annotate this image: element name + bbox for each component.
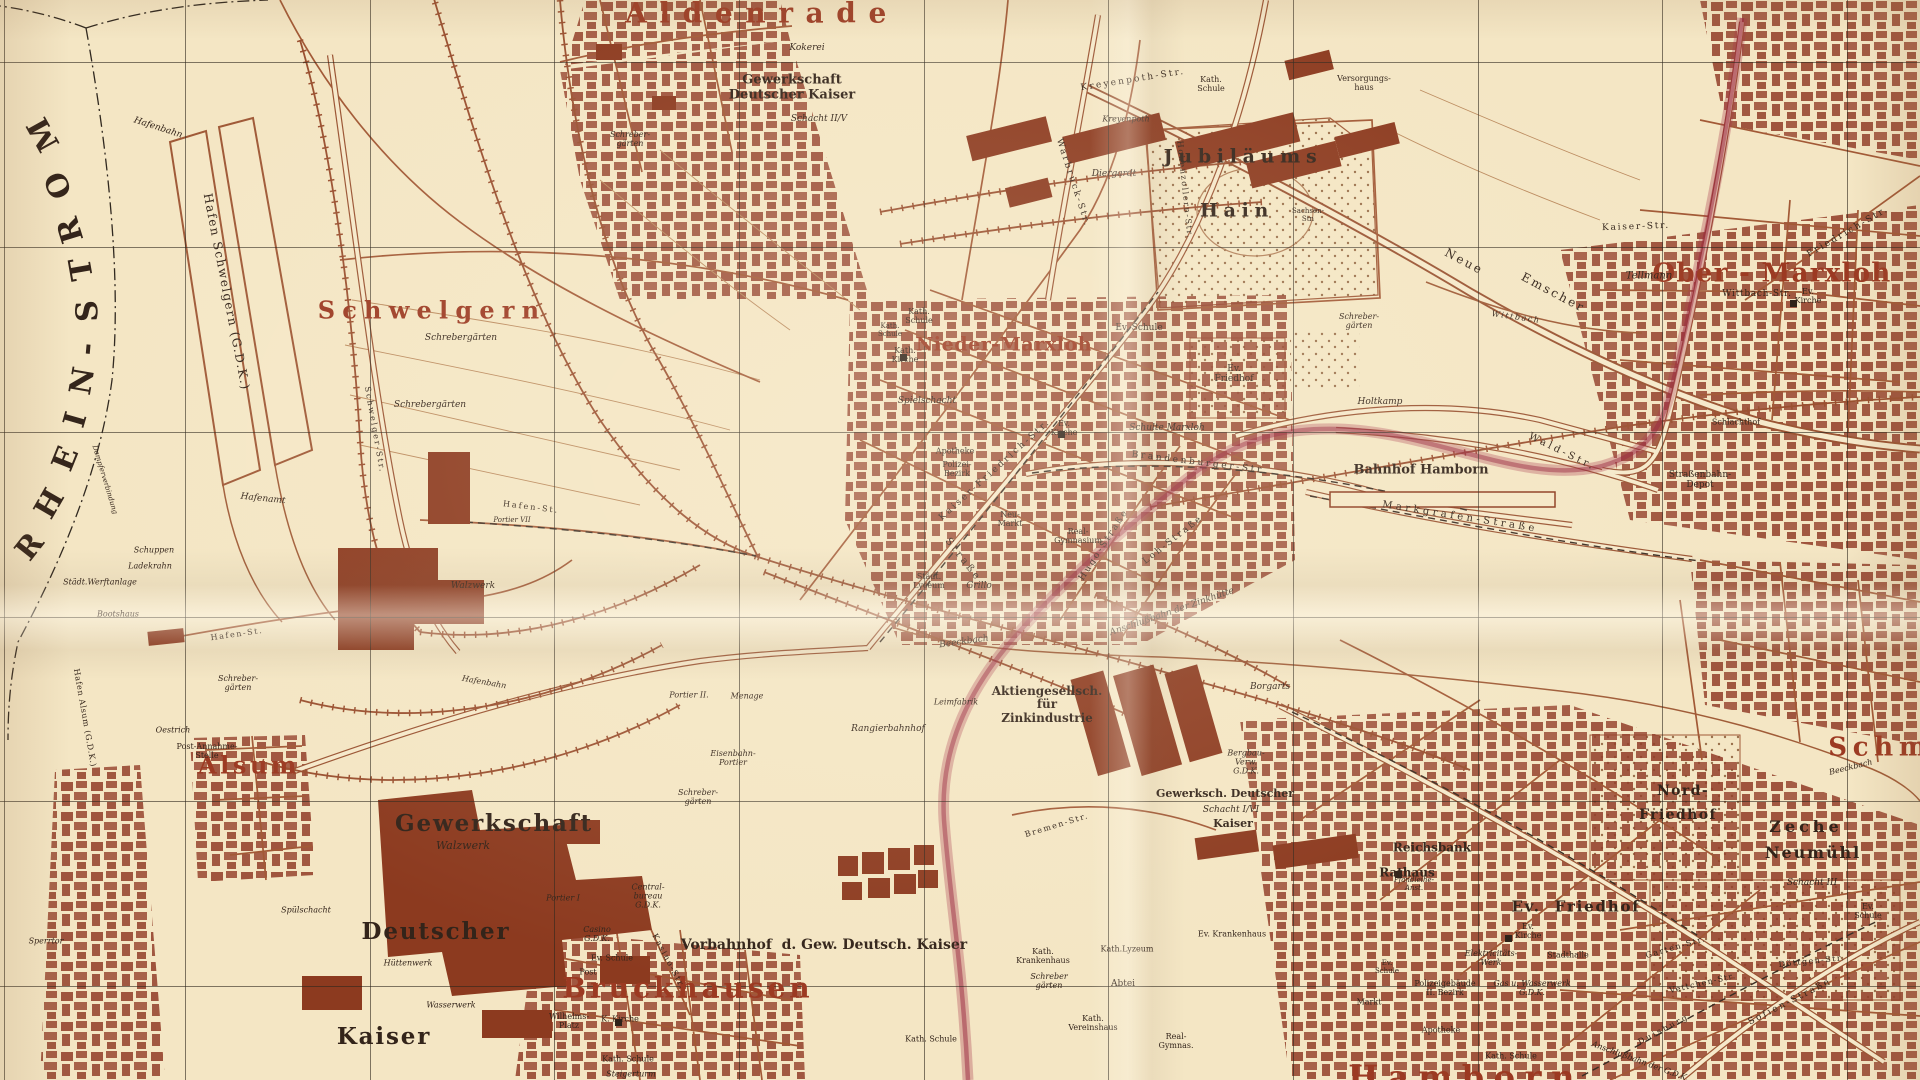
poi-reichsbank: Reichsbank bbox=[1393, 841, 1471, 854]
street-garten: Garten-Str. bbox=[1645, 935, 1708, 961]
poi-schacht-iii: Schacht III bbox=[1787, 878, 1837, 888]
poi-grillo: Grillo bbox=[966, 581, 992, 591]
water-hafen-schwelgern: Hafen Schwelgern (G.D.K.) bbox=[200, 192, 252, 392]
poi-holtkamp: Holtkamp bbox=[1358, 397, 1403, 407]
poi-staedt-lyceum: Städt. Lyceum bbox=[913, 573, 945, 591]
place-gewerkschaft: Gewerkschaft bbox=[395, 811, 593, 837]
street-vettchen: Vettchen-Str. bbox=[1669, 972, 1737, 996]
poi-versorgungshaus: Versorgungs- haus bbox=[1337, 75, 1391, 93]
poi-steigerturm: Steigerturm bbox=[606, 1071, 655, 1080]
poi-schuppen: Schuppen bbox=[134, 547, 174, 556]
street-doettgen: Döttgen-Str. bbox=[1778, 954, 1845, 970]
rhein-strom-letter: O bbox=[38, 166, 79, 203]
poi-polizeigebaeude: Polizeigebäude II. Bezirk bbox=[1414, 980, 1475, 998]
poi-k-kirche: K. Kirche bbox=[601, 1016, 639, 1025]
place-schwelgern: Schwelgern bbox=[318, 298, 547, 325]
place-jubilaeums-hain: Jubiläums bbox=[1164, 146, 1323, 167]
poi-wasserwerk: Wasserwerk bbox=[426, 1002, 475, 1011]
poi-kokerei: Kokerei bbox=[789, 43, 824, 53]
poi-schrebergaerten: Schrebergärten bbox=[425, 333, 497, 343]
poi-wilhelmsplatz: Wilhelms- Platz bbox=[549, 1013, 589, 1031]
map-labels: AldenradeSchwelgernNieder-MarxlohOber - … bbox=[0, 0, 1920, 1080]
rhein-strom-letter: S bbox=[71, 300, 105, 323]
poi-spielschacht: Spielschacht bbox=[898, 396, 956, 406]
poi-kreyenpoth: Kreyenpoth bbox=[1102, 116, 1149, 125]
poi-schrebergaerten: Schreber- gärten bbox=[610, 131, 650, 149]
poi-nordfriedhof: Friedhof bbox=[1639, 808, 1717, 824]
poi-neu-markt: Neu- Markt bbox=[998, 511, 1023, 529]
poi-menage: Menage bbox=[731, 693, 764, 702]
poi-schulte-marxloh: Schulte Marxloh bbox=[1129, 423, 1205, 433]
place-hamborn: Hamborn bbox=[1348, 1060, 1584, 1080]
poi-kath-schule: Kath. Schule bbox=[878, 323, 902, 339]
place-nieder-marxloh: Nieder-Marxloh bbox=[916, 334, 1092, 355]
poi-rangierbahnhof: Rangierbahnhof bbox=[851, 724, 925, 734]
poi-pfandleihe: Pfandleihe- Anst. bbox=[1394, 877, 1434, 893]
water-wittbach: Wittbach bbox=[1491, 310, 1541, 326]
rhein-strom-letter: H bbox=[28, 483, 71, 524]
poi-bootshaus: Bootshaus bbox=[97, 611, 139, 620]
water-neue-emscher: Neue bbox=[1442, 246, 1485, 278]
street-strasse: Straße bbox=[943, 536, 984, 584]
poi-portier: Portier I bbox=[546, 895, 580, 904]
poi-bahnhof-hamborn: Bahnhof Hamborn bbox=[1353, 464, 1488, 479]
poi-real-gymnasium: Real- Gymnasium bbox=[1054, 528, 1102, 546]
street-bremen: Bremen-Str. bbox=[1024, 812, 1090, 840]
poi-ev-friedhof: Ev. Friedhof bbox=[1511, 899, 1640, 916]
poi-real-gymnasium: Real- Gymnas. bbox=[1158, 1033, 1193, 1051]
poi-markt: Markt bbox=[1357, 999, 1382, 1008]
street-loh: Loh-Straße bbox=[1141, 513, 1205, 566]
rhein-strom-letter: T bbox=[64, 255, 101, 283]
place-jubilaeums-hain: Hain bbox=[1200, 200, 1274, 221]
poi-werftanlage: Städt.Werftanlage bbox=[63, 579, 137, 588]
poi-ev-krankenhaus: Ev. Krankenhaus bbox=[1198, 931, 1266, 940]
rhein-strom-letter: N bbox=[64, 365, 102, 398]
poi-elektricitaetswerk: Elektricitäts- Werk bbox=[1465, 950, 1518, 968]
poi-ev-schule: Ev. Schule bbox=[1375, 960, 1399, 976]
rail-hafenbahn: Hafenbahn bbox=[461, 675, 507, 692]
poi-bergbau-verwaltung: Bergbau- Verw. G.D.K. bbox=[1227, 750, 1264, 777]
map-canvas: AldenradeSchwelgernNieder-MarxlohOber - … bbox=[0, 0, 1920, 1080]
poi-apotheke: Apotheke bbox=[1422, 1027, 1460, 1036]
poi-stadthalle: Stadthalle bbox=[1547, 952, 1589, 961]
poi-ev-friedhof-marxloh: Ev. Friedhof bbox=[1214, 364, 1253, 384]
poi-ev-kirche: Ev. Kirche bbox=[1051, 420, 1078, 438]
poi-schacht-i-vi: Schacht I/VI bbox=[1203, 805, 1259, 815]
poi-sperrtor: Sperrtor bbox=[29, 938, 64, 947]
poi-spuelschacht: Spülschacht bbox=[281, 907, 331, 916]
rhein-strom-letter: I bbox=[58, 409, 94, 432]
poi-eisenbahn-portier: Eisenbahn- Portier bbox=[710, 750, 755, 768]
poi-ev-kirche: Ev. Kirche bbox=[1515, 923, 1542, 941]
place-kaiser: Kaiser bbox=[337, 1024, 431, 1050]
poi-post-annahme: Post-Annahme- Stelle bbox=[177, 743, 238, 761]
place-schmidthorst-cut: Schmi bbox=[1828, 733, 1920, 762]
water-hafen-alsum: Hafen Alsum (G.D.K.) bbox=[71, 668, 97, 768]
poi-schlachthof: Schlachthof bbox=[1712, 419, 1760, 428]
poi-apotheke: Apotheke bbox=[936, 448, 974, 457]
place-zeche-neumuehl: Zeche bbox=[1769, 818, 1842, 836]
poi-kath-krankenhaus: Kath. Krankenhaus bbox=[1016, 948, 1070, 966]
street-hafen: Hafen-St. bbox=[502, 500, 559, 516]
poi-gdk-sued: Kaiser bbox=[1213, 818, 1253, 830]
poi-tellmann: Tellmann bbox=[1626, 270, 1673, 281]
poi-kath-schule: Kath. Schule bbox=[1485, 1053, 1537, 1062]
rhein-strom-letter: E bbox=[46, 442, 86, 476]
poi-vorbahnhof: Vorbahnhof d. Gew. Deutsch. Kaiser bbox=[681, 938, 967, 954]
rail-hafenbahn: Hafenbahn bbox=[132, 115, 183, 140]
poi-sachsen-stn: Sachsen- Stn bbox=[1292, 208, 1324, 224]
poi-schacht-ii-v: Schacht II/V bbox=[791, 114, 847, 124]
water-beeckbach: Beeckbach bbox=[939, 634, 990, 651]
poi-kath-kirche: Kath. Kirche bbox=[892, 347, 919, 365]
poi-ladekrahn: Ladekrahn bbox=[128, 563, 172, 572]
street-wittbach-str: Wittbach-Str. bbox=[1722, 289, 1792, 299]
poi-kath-vereinshaus: Kath. Vereinshaus bbox=[1068, 1015, 1117, 1033]
poi-walzwerk: Walzwerk bbox=[436, 840, 490, 852]
poi-polizei-bezirk: Polizei- Bezirk bbox=[942, 461, 971, 479]
rhein-strom-letter: - bbox=[70, 341, 105, 356]
street-markgrafen: Markgrafen-Straße bbox=[1381, 499, 1538, 535]
poi-kath-schule: Kath. Schule bbox=[1197, 76, 1225, 94]
route-duisburg-tram: Duisburg bbox=[1637, 1013, 1691, 1048]
poi-post: Post bbox=[579, 969, 596, 978]
place-deutscher: Deutscher bbox=[362, 919, 511, 945]
street-friedrich: Friedrich-Str. bbox=[1805, 204, 1891, 259]
poi-schrebergaerten: Schreber- gärten bbox=[678, 789, 718, 807]
route-dampferverbindung: Dampferverbindung bbox=[90, 445, 118, 516]
poi-ev-kirche: Ev. Kirche bbox=[1795, 288, 1822, 306]
poi-diergardt: Diergardt bbox=[1092, 169, 1137, 179]
poi-kath-schule: Kath. Schule bbox=[602, 1056, 654, 1065]
street-kreyenpoth: Kreyenpoth-Str. bbox=[1080, 67, 1186, 94]
rhein-strom-letter: M bbox=[21, 111, 66, 156]
place-ober-marxloh: Ober - Marxloh bbox=[1652, 259, 1891, 288]
poi-gdk-sued: Gewerksch. Deutscher bbox=[1156, 788, 1294, 800]
poi-gdk-nord: Gewerkschaft Deutscher Kaiser bbox=[729, 73, 855, 102]
poi-kath-lyzeum: Kath.Lyzeum bbox=[1100, 946, 1153, 955]
poi-schrebergaerten: Schreber- gärten bbox=[1339, 313, 1379, 331]
street-brandenburger: Brandenburger-Str. bbox=[1131, 450, 1269, 477]
poi-nordfriedhof: Nord- bbox=[1657, 784, 1709, 800]
street-warbruck: Warbruck-Str. bbox=[1054, 137, 1092, 228]
poi-zinkindustrie: Aktiengesellsch. für Zinkindustrie bbox=[992, 685, 1103, 725]
water-neue-emscher: Emscher bbox=[1519, 271, 1587, 316]
place-bruckhausen: Bruckhausen bbox=[562, 972, 813, 1003]
rhein-strom-letter: R bbox=[9, 527, 51, 567]
poi-hafenamt: Hafenamt bbox=[240, 492, 286, 507]
poi-kath-schule: Kath. Schule bbox=[905, 308, 933, 326]
poi-portier: Portier II. bbox=[669, 692, 708, 701]
poi-schrebergaerten: Schreber gärten bbox=[1030, 973, 1067, 991]
poi-ev-schule: Ev. Schule bbox=[591, 955, 633, 964]
poi-strassenbahn-depot: Straßenbahn- Depot bbox=[1669, 470, 1731, 490]
street-schwelger: Schwelger-Str. bbox=[362, 386, 386, 474]
poi-kath-schule: Kath. Schule bbox=[905, 1036, 957, 1045]
street-sofien: Sofien-Straße bbox=[1747, 977, 1834, 1028]
place-zeche-neumuehl: Neumühl bbox=[1765, 844, 1861, 862]
poi-walzwerk: Walzwerk bbox=[451, 581, 495, 591]
poi-schrebergaerten: Schrebergärten bbox=[394, 400, 466, 410]
poi-ev-schule: Ev. Schule bbox=[1115, 323, 1162, 333]
rhein-strom-letter: R bbox=[51, 213, 90, 247]
poi-casino: Casino G.D.K. bbox=[583, 926, 611, 944]
street-wald: Wald-Str. bbox=[1527, 431, 1598, 473]
poi-leimfabrik: Leimfabrik bbox=[934, 699, 978, 708]
poi-schrebergaerten: Schreber- gärten bbox=[218, 675, 258, 693]
street-kaiser: Kaiser-Str. bbox=[1602, 221, 1670, 233]
poi-gaswasserwerk: Gas u. Wasserwerk G.D.K. bbox=[1493, 980, 1570, 998]
poi-portier: Portier VII bbox=[493, 517, 530, 525]
poi-borgarts: Borgarts bbox=[1250, 682, 1290, 692]
poi-ev-schule: Ev. Schule bbox=[1854, 903, 1882, 921]
poi-huettenwerk: Hüttenwerk bbox=[384, 960, 433, 969]
place-aldenrade: Aldenrade bbox=[625, 0, 899, 29]
street-hafen-alsum: Hafen-St. bbox=[210, 627, 264, 643]
poi-oestrich: Oestrich bbox=[156, 727, 191, 736]
poi-centralbureau: Central- bureau G.D.K. bbox=[631, 884, 664, 911]
poi-abtei: Abtei bbox=[1111, 979, 1135, 989]
rail-anschlussbahn: Anschlußbahn der Zinkhütte bbox=[1109, 586, 1236, 638]
